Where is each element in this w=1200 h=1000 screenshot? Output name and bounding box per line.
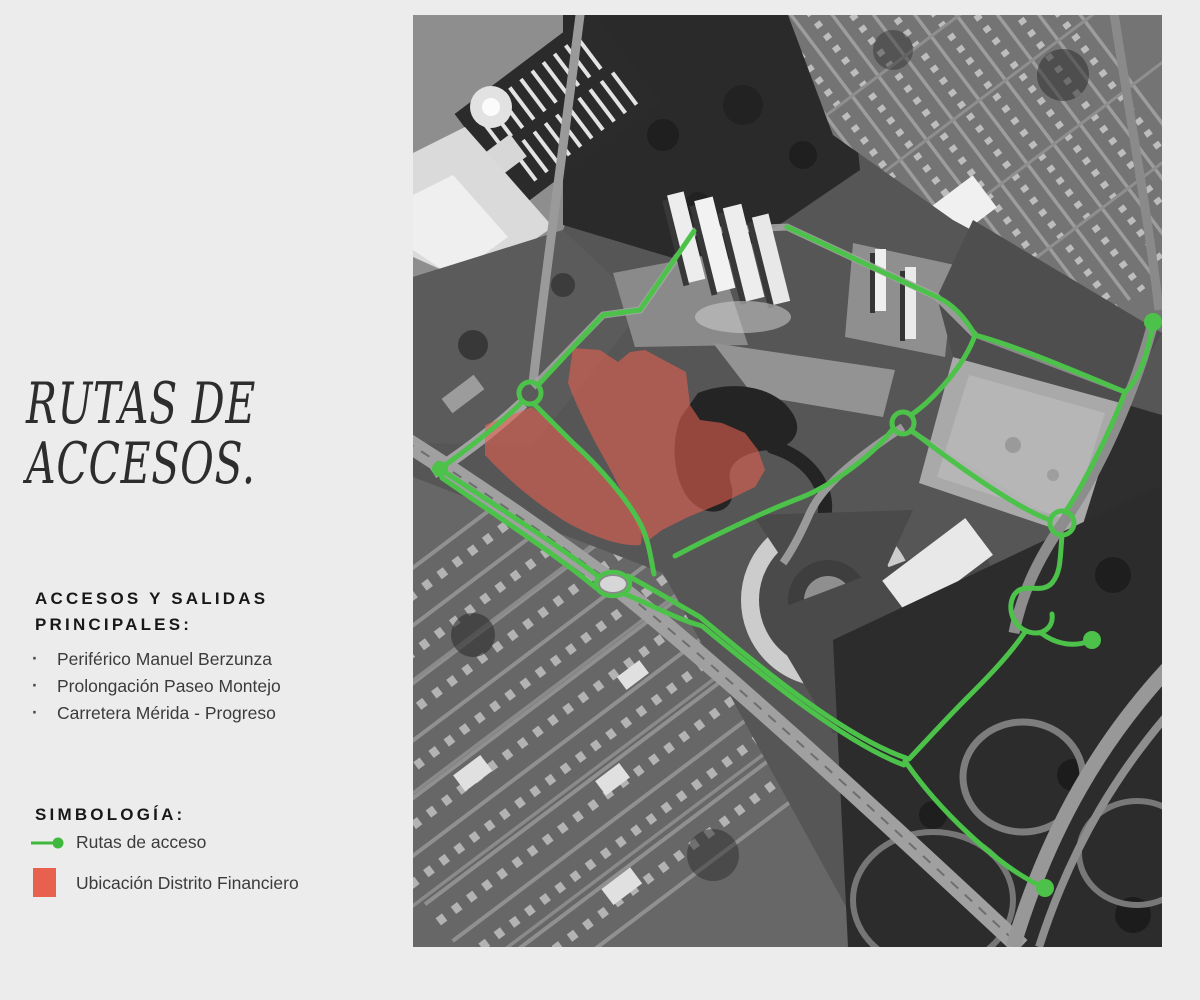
slide: RUTAS DE ACCESOS. ACCESOS Y SALIDAS PRIN… [0,0,1200,1000]
page-title-line1: RUTAS DE [26,374,256,434]
location-square-icon [30,868,66,898]
access-routes-list: Periférico Manuel Berzunza Prolongación … [32,650,281,731]
simbologia-heading: SIMBOLOGÍA: [35,802,315,828]
route-arrow-icon [30,836,66,850]
page-title-line2: ACCESOS. [26,434,256,494]
legend-row-district: Ubicación Distrito Financiero [30,868,299,898]
symbology-legend: Rutas de acceso Ubicación Distrito Finan… [30,832,299,913]
legend-row-routes: Rutas de acceso [30,832,299,853]
legend-label-district: Ubicación Distrito Financiero [76,873,299,894]
legend-label-routes: Rutas de acceso [76,832,206,853]
aerial-map [413,15,1162,947]
aerial-map-svg [413,15,1162,947]
route-item-progreso: Carretera Mérida - Progreso [32,704,281,723]
accesos-heading: ACCESOS Y SALIDAS PRINCIPALES: [35,586,295,638]
left-panel: RUTAS DE ACCESOS. ACCESOS Y SALIDAS PRIN… [0,0,413,1000]
route-item-periferico: Periférico Manuel Berzunza [32,650,281,669]
route-item-montejo: Prolongación Paseo Montejo [32,677,281,696]
page-title: RUTAS DE ACCESOS. [26,374,256,494]
